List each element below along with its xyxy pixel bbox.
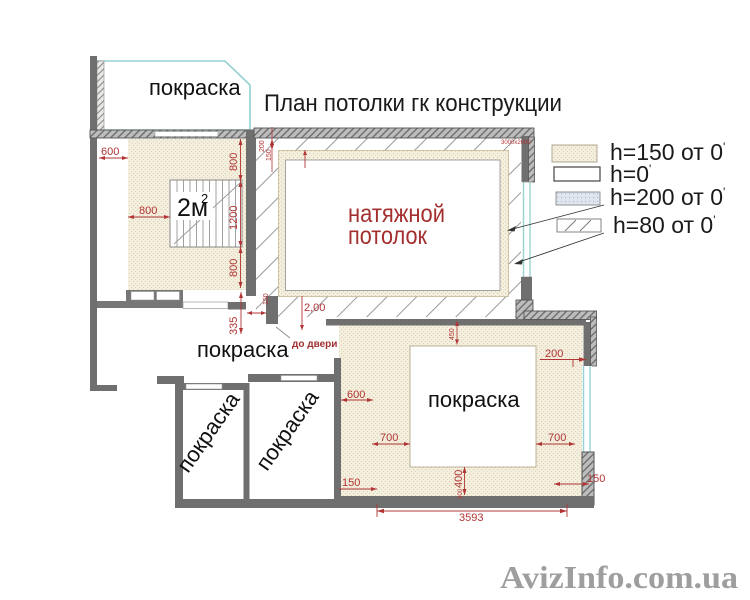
svg-text:до двери: до двери <box>292 339 337 350</box>
svg-text:800: 800 <box>139 205 157 217</box>
svg-text:300: 300 <box>458 488 464 499</box>
svg-text:h=200 от 0': h=200 от 0' <box>610 184 725 210</box>
svg-text:2,00: 2,00 <box>304 302 325 314</box>
svg-text:335: 335 <box>228 317 240 335</box>
svg-text:200: 200 <box>259 140 266 152</box>
svg-text:200: 200 <box>545 348 563 360</box>
svg-text:400: 400 <box>453 470 465 488</box>
svg-text:150: 150 <box>263 293 270 305</box>
svg-text:600: 600 <box>101 146 119 158</box>
svg-text:800: 800 <box>228 259 240 277</box>
svg-text:AvizInfo.com.ua: AvizInfo.com.ua <box>500 559 738 595</box>
svg-text:1200: 1200 <box>228 206 240 230</box>
svg-text:700: 700 <box>548 432 566 444</box>
svg-text:покраска: покраска <box>149 75 241 100</box>
svg-text:2: 2 <box>201 191 208 206</box>
svg-text:450: 450 <box>449 328 456 340</box>
svg-text:покраска: покраска <box>197 337 289 362</box>
svg-text:покраска: покраска <box>428 387 520 412</box>
svg-text:150: 150 <box>266 149 273 161</box>
svg-text:600: 600 <box>347 389 365 401</box>
svg-text:потолок: потолок <box>348 222 428 250</box>
svg-text:h=80 от 0': h=80 от 0' <box>613 212 716 238</box>
svg-text:800: 800 <box>228 153 240 171</box>
svg-text:3593: 3593 <box>459 512 483 524</box>
svg-text:700: 700 <box>380 432 398 444</box>
svg-text:3000x2000: 3000x2000 <box>501 140 531 146</box>
svg-text:150: 150 <box>587 473 605 485</box>
svg-text:План потолки гк конструкции: План потолки гк конструкции <box>264 90 562 117</box>
svg-text:150: 150 <box>342 477 360 489</box>
